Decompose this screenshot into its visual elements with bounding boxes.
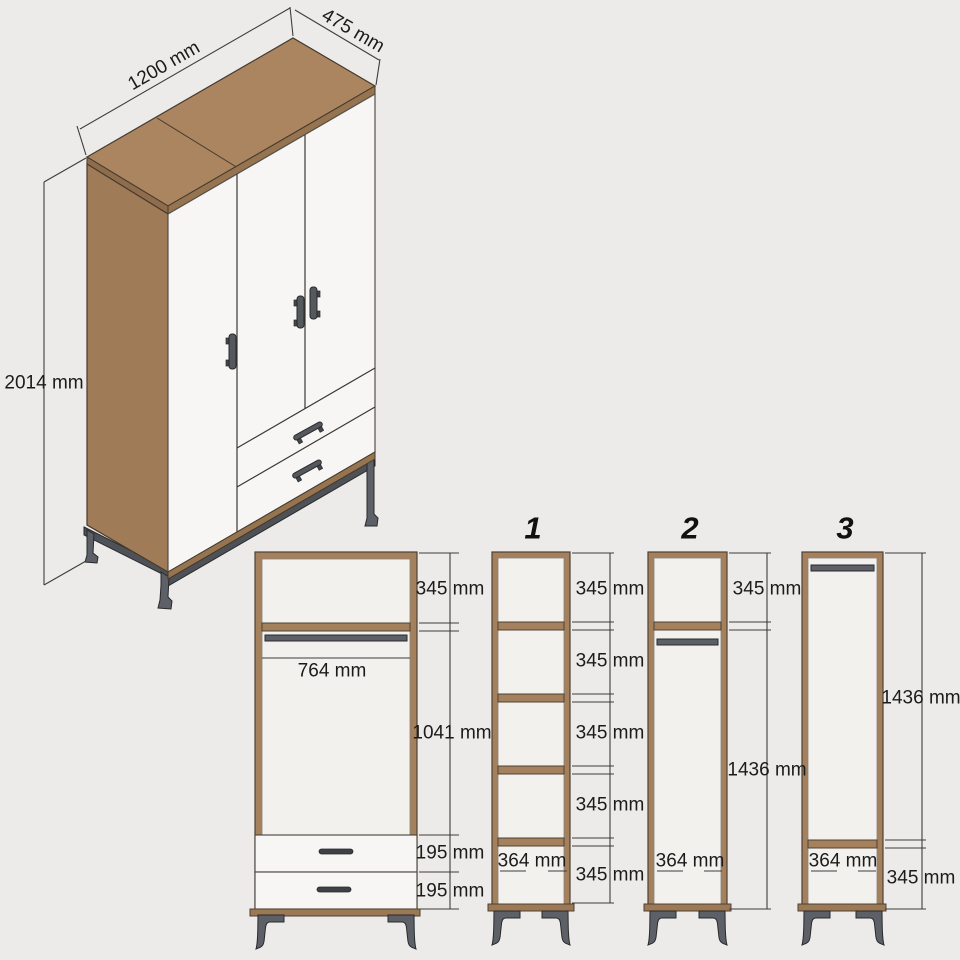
front-drawer-handle-2 bbox=[317, 887, 351, 892]
iso-side-panel bbox=[87, 164, 168, 572]
section-2-number: 2 bbox=[681, 513, 698, 544]
section-3-hanging-rail bbox=[811, 565, 874, 571]
front-middle-dim-label: 1041 mm bbox=[412, 724, 491, 743]
section-1-dim-label: 345 mm bbox=[576, 866, 645, 885]
section-3-shelf bbox=[808, 840, 877, 848]
section-2-base bbox=[644, 904, 731, 911]
front-drawer2-dim-label: 195 mm bbox=[416, 882, 485, 901]
diagram-artwork bbox=[0, 0, 960, 960]
front-shelf bbox=[262, 623, 410, 631]
section-2-shelf bbox=[654, 622, 721, 630]
section-1-view bbox=[488, 552, 614, 945]
section-1-base bbox=[488, 904, 574, 911]
front-top-dim-label: 345 mm bbox=[416, 580, 485, 599]
front-drawer1-dim-label: 195 mm bbox=[416, 844, 485, 863]
section-1-dim-label: 345 mm bbox=[576, 580, 645, 599]
section-1-number: 1 bbox=[524, 513, 541, 544]
wardrobe-dimension-diagram: 2014 mm 1200 mm 475 mm 345 mm 764 mm 104… bbox=[0, 0, 960, 960]
section-1-shelf bbox=[498, 622, 564, 630]
section-1-shelf bbox=[498, 766, 564, 774]
section-1-shelf bbox=[498, 694, 564, 702]
front-inner-width-label: 764 mm bbox=[298, 662, 367, 681]
section-2-dim-label: 1436 mm bbox=[727, 761, 806, 780]
iso-leg-front-right bbox=[365, 458, 378, 526]
iso-view bbox=[44, 7, 380, 609]
section-2-view bbox=[644, 552, 771, 945]
iso-height-label: 2014 mm bbox=[4, 374, 83, 393]
section-1-dim-label: 345 mm bbox=[576, 724, 645, 743]
section-2-width-label: 364 mm bbox=[656, 852, 725, 871]
section-2-dim-label: 345 mm bbox=[733, 580, 802, 599]
section-2-hanging-rail bbox=[657, 639, 718, 645]
section-3-dim-label: 345 mm bbox=[887, 869, 956, 888]
front-hanging-rail bbox=[265, 635, 407, 641]
section-1-width-label: 364 mm bbox=[498, 852, 567, 871]
section-3-dim-label: 1436 mm bbox=[881, 689, 960, 708]
section-1-shelf bbox=[498, 838, 564, 846]
section-3-number: 3 bbox=[836, 513, 853, 544]
front-interior bbox=[262, 559, 410, 835]
section-3-base bbox=[798, 904, 886, 911]
section-3-width-label: 364 mm bbox=[809, 852, 878, 871]
section-1-dim-label: 345 mm bbox=[576, 652, 645, 671]
section-1-dim-label: 345 mm bbox=[576, 796, 645, 815]
front-drawer-handle-1 bbox=[319, 849, 353, 854]
